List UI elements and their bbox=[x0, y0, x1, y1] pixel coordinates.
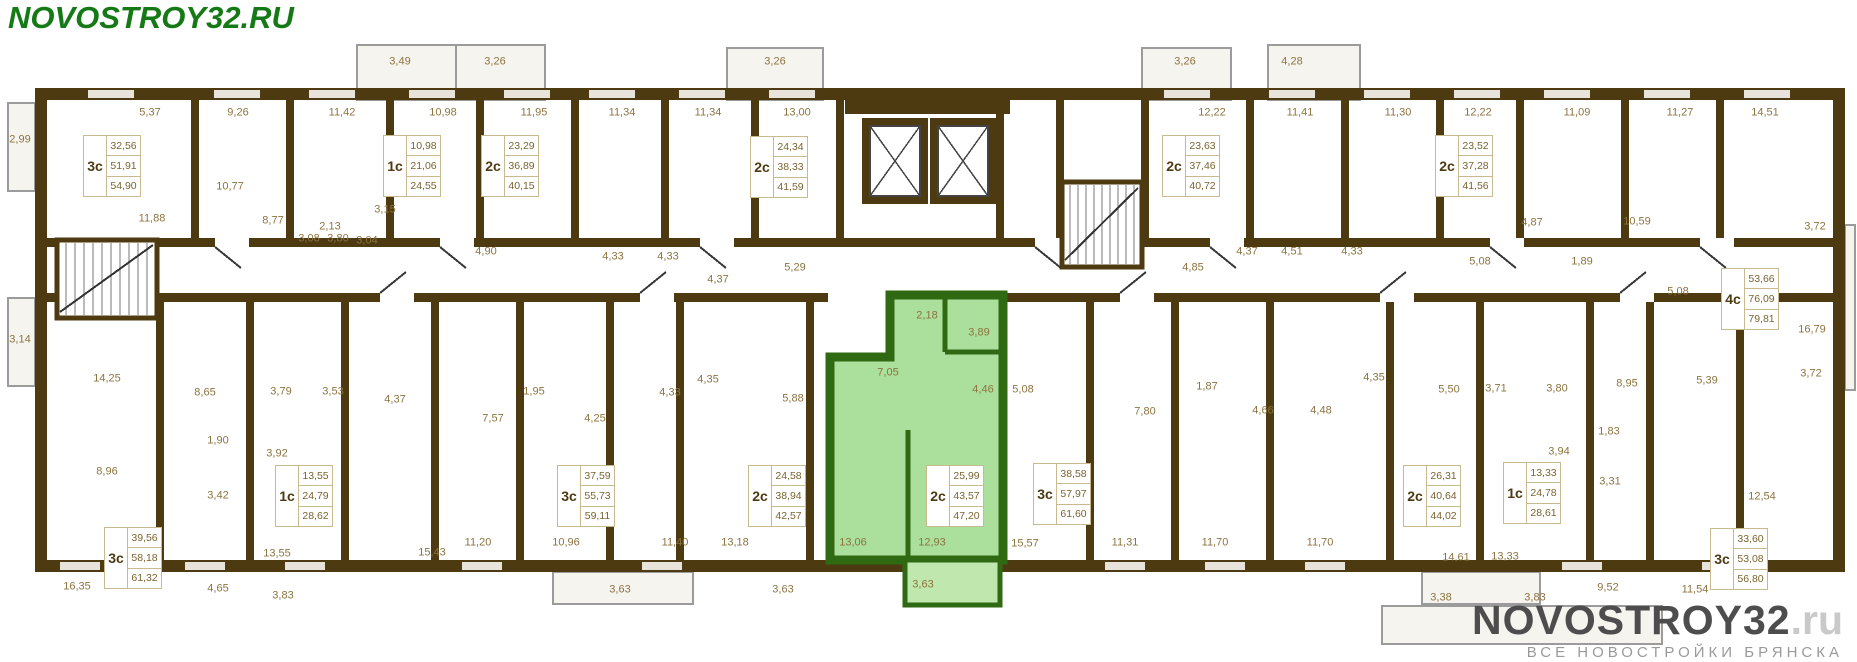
dimension-label: 2,13 bbox=[319, 222, 340, 233]
apartment-card[interactable]: 3с37,5955,7359,11 bbox=[557, 465, 615, 527]
dimension-label: 3,08 bbox=[298, 234, 319, 245]
dimension-label: 11,31 bbox=[1112, 538, 1139, 549]
dimension-label: 14,61 bbox=[1442, 553, 1470, 564]
apartment-area-value: 23,52 bbox=[1459, 136, 1492, 155]
apartment-type: 2с bbox=[751, 137, 773, 197]
dimension-label: 12,54 bbox=[1748, 492, 1776, 503]
dimension-label: 11,42 bbox=[329, 108, 356, 119]
apartment-area-value: 53,08 bbox=[1734, 548, 1767, 568]
dimension-label: 2,99 bbox=[9, 135, 30, 146]
dimension-label: 3,92 bbox=[266, 449, 287, 460]
apartment-type: 2с bbox=[482, 136, 504, 196]
dimension-label: 11,70 bbox=[1202, 538, 1229, 549]
floor-plan-svg bbox=[0, 0, 1857, 662]
apartment-area-value: 59,11 bbox=[581, 506, 614, 526]
apartment-card[interactable]: 2с23,2936,8940,15 bbox=[481, 135, 539, 197]
dimension-label: 13,00 bbox=[783, 108, 811, 119]
apartment-area-value: 24,34 bbox=[774, 137, 807, 156]
apartment-type: 3с bbox=[84, 136, 106, 196]
apartment-card[interactable]: 3с39,5658,1861,32 bbox=[104, 527, 162, 589]
dimension-label: 4,87 bbox=[1521, 218, 1542, 229]
apartment-area-value: 37,46 bbox=[1186, 155, 1219, 175]
apartment-areas: 33,6053,0856,80 bbox=[1733, 529, 1767, 589]
dimension-label: 13,55 bbox=[263, 549, 291, 560]
dimension-label: 5,08 bbox=[1667, 287, 1688, 298]
dimension-label: 13,06 bbox=[839, 538, 867, 549]
apartment-area-value: 13,33 bbox=[1527, 463, 1560, 482]
dimension-label: 1,87 bbox=[1196, 382, 1217, 393]
dimension-label: 3,26 bbox=[764, 57, 785, 68]
dimension-label: 9,26 bbox=[227, 108, 248, 119]
apartment-area-value: 28,61 bbox=[1527, 503, 1560, 523]
watermark-tagline: ВСЕ НОВОСТРОЙКИ БРЯНСКА bbox=[1472, 645, 1843, 660]
apartment-type: 3с bbox=[1034, 464, 1056, 524]
dimension-label: 11,70 bbox=[1307, 538, 1334, 549]
dimension-label: 12,22 bbox=[1464, 108, 1492, 119]
stairwell-left bbox=[57, 240, 157, 318]
dimension-label: 4,33 bbox=[1341, 247, 1362, 258]
dimension-label: 11,20 bbox=[465, 538, 492, 549]
door-leaves bbox=[120, 247, 1726, 293]
apartment-area-value: 24,55 bbox=[407, 176, 440, 196]
dimension-label: 12,22 bbox=[1198, 108, 1226, 119]
dimension-label: 7,57 bbox=[482, 414, 503, 425]
dimension-label: 1,95 bbox=[523, 387, 544, 398]
apartment-type: 1с bbox=[384, 136, 406, 196]
apartment-area-value: 40,15 bbox=[505, 176, 538, 196]
apartment-card[interactable]: 2с24,3438,3341,59 bbox=[750, 136, 808, 198]
dimension-label: 11,54 bbox=[1682, 585, 1709, 596]
apartment-type: 4с bbox=[1722, 269, 1744, 329]
dimension-label: 8,96 bbox=[96, 467, 117, 478]
apartment-areas: 23,6337,4640,72 bbox=[1185, 136, 1219, 196]
dimension-label: 3,26 bbox=[1174, 57, 1195, 68]
apartment-card-highlighted[interactable]: 2с25,9943,5747,20 bbox=[926, 465, 984, 527]
dimension-label: 3,89 bbox=[968, 328, 989, 339]
apartment-areas: 32,5651,9154,90 bbox=[106, 136, 140, 196]
page: NOVOSTROY32.RU bbox=[0, 0, 1857, 662]
apartment-area-value: 37,28 bbox=[1459, 155, 1492, 175]
apartment-area-value: 38,58 bbox=[1057, 464, 1090, 483]
apartment-area-value: 13,55 bbox=[299, 466, 332, 485]
apartment-area-value: 39,56 bbox=[128, 528, 161, 547]
apartment-areas: 38,5857,9761,60 bbox=[1056, 464, 1090, 524]
dimension-label: 5,88 bbox=[782, 394, 803, 405]
dimension-label: 5,39 bbox=[1696, 376, 1717, 387]
apartment-areas: 25,9943,5747,20 bbox=[949, 466, 983, 526]
dimension-label: 11,09 bbox=[1564, 108, 1591, 119]
apartment-type: 1с bbox=[1504, 463, 1526, 523]
apartment-area-value: 24,79 bbox=[299, 485, 332, 505]
apartment-areas: 23,5237,2841,56 bbox=[1458, 136, 1492, 196]
dimension-label: 3,31 bbox=[1599, 477, 1620, 488]
apartment-areas: 24,3438,3341,59 bbox=[773, 137, 807, 197]
apartment-area-value: 26,31 bbox=[1427, 466, 1460, 485]
dimension-label: 4,33 bbox=[659, 388, 680, 399]
apartment-type: 2с bbox=[1404, 466, 1426, 526]
dimension-label: 1,83 bbox=[1598, 427, 1619, 438]
dimension-label: 4,37 bbox=[384, 395, 405, 406]
dimension-label: 3,63 bbox=[912, 580, 933, 591]
dimension-label: 3,14 bbox=[9, 335, 30, 346]
apartment-area-value: 40,72 bbox=[1186, 176, 1219, 196]
apartment-type: 2с bbox=[1436, 136, 1458, 196]
apartment-area-value: 24,78 bbox=[1527, 482, 1560, 502]
dimension-label: 3,79 bbox=[270, 387, 291, 398]
apartment-type: 3с bbox=[105, 528, 127, 588]
dimension-label: 5,08 bbox=[1012, 385, 1033, 396]
apartment-area-value: 38,94 bbox=[772, 485, 805, 505]
apartment-areas: 13,3324,7828,61 bbox=[1526, 463, 1560, 523]
apartment-area-value: 61,60 bbox=[1057, 504, 1090, 524]
dimension-label: 5,37 bbox=[139, 108, 160, 119]
watermark-brand: NOVOSTROY32 bbox=[1472, 597, 1791, 643]
dimension-label: 11,41 bbox=[1287, 108, 1314, 119]
apartment-areas: 23,2936,8940,15 bbox=[504, 136, 538, 196]
dimension-label: 3,71 bbox=[1485, 384, 1506, 395]
apartment-areas: 53,6676,0979,81 bbox=[1744, 269, 1778, 329]
dimension-label: 3,49 bbox=[389, 57, 410, 68]
dimension-label: 2,18 bbox=[916, 311, 937, 322]
dimension-label: 16,79 bbox=[1798, 325, 1826, 336]
apartment-area-value: 24,58 bbox=[772, 466, 805, 485]
dimension-label: 1,89 bbox=[1571, 257, 1592, 268]
apartment-card[interactable]: 2с26,3140,6444,02 bbox=[1403, 465, 1461, 527]
dimension-label: 1,90 bbox=[207, 436, 228, 447]
apartment-area-value: 54,90 bbox=[107, 176, 140, 196]
dimension-label: 11,40 bbox=[662, 538, 689, 549]
dimension-label: 5,50 bbox=[1438, 385, 1459, 396]
dimension-label: 3,26 bbox=[484, 57, 505, 68]
floor-plan: 5,379,2611,4210,9811,9511,3411,3413,0012… bbox=[0, 0, 1857, 662]
dimension-label: 10,77 bbox=[216, 182, 244, 193]
dimension-label: 3,38 bbox=[1430, 593, 1451, 604]
apartment-card[interactable]: 3с38,5857,9761,60 bbox=[1033, 463, 1091, 525]
apartment-type: 1с bbox=[276, 466, 298, 526]
apartment-card[interactable]: 1с13,3324,7828,61 bbox=[1503, 462, 1561, 524]
dimension-label: 15,43 bbox=[418, 548, 446, 559]
dimension-label: 4,35 bbox=[697, 375, 718, 386]
apartment-area-value: 32,56 bbox=[107, 136, 140, 155]
dimension-label: 3,63 bbox=[772, 585, 793, 596]
dimension-label: 14,51 bbox=[1751, 108, 1779, 119]
dimension-label: 4,35 bbox=[1363, 373, 1384, 384]
apartment-area-value: 76,09 bbox=[1745, 288, 1778, 308]
dimension-label: 4,90 bbox=[475, 247, 496, 258]
apartment-area-value: 23,29 bbox=[505, 136, 538, 155]
apartment-type: 2с bbox=[749, 466, 771, 526]
apartment-areas: 24,5838,9442,57 bbox=[771, 466, 805, 526]
dimension-label: 3,80 bbox=[1546, 384, 1567, 395]
apartment-area-value: 43,57 bbox=[950, 485, 983, 505]
dimension-label: 15,57 bbox=[1011, 539, 1039, 550]
dimension-label: 11,27 bbox=[1667, 108, 1694, 119]
dimension-label: 3,72 bbox=[1804, 222, 1825, 233]
dimension-label: 11,34 bbox=[609, 108, 636, 119]
dimension-label: 3,53 bbox=[322, 387, 343, 398]
dimension-label: 3,72 bbox=[1800, 369, 1821, 380]
apartment-area-value: 36,89 bbox=[505, 155, 538, 175]
apartment-areas: 37,5955,7359,11 bbox=[580, 466, 614, 526]
dimension-label: 10,98 bbox=[429, 108, 457, 119]
dimension-label: 4,33 bbox=[602, 252, 623, 263]
stairwell-center bbox=[1062, 182, 1142, 267]
apartment-area-value: 33,60 bbox=[1734, 529, 1767, 548]
apartment-area-value: 21,06 bbox=[407, 155, 440, 175]
dimension-label: 4,85 bbox=[1182, 263, 1203, 274]
apartment-card[interactable]: 2с23,5237,2841,56 bbox=[1435, 135, 1493, 197]
apartment-card[interactable]: 3с33,6053,0856,80 bbox=[1710, 528, 1768, 590]
dimension-label: 4,37 bbox=[1236, 247, 1257, 258]
apartment-areas: 39,5658,1861,32 bbox=[127, 528, 161, 588]
apartment-type: 3с bbox=[1711, 529, 1733, 589]
apartment-area-value: 79,81 bbox=[1745, 309, 1778, 329]
dimension-label: 11,95 bbox=[521, 108, 548, 119]
apartment-area-value: 28,62 bbox=[299, 506, 332, 526]
dimension-label: 14,25 bbox=[93, 374, 121, 385]
dimension-label: 3,94 bbox=[1548, 447, 1569, 458]
apartment-type: 2с bbox=[927, 466, 949, 526]
dimension-label: 7,05 bbox=[877, 368, 898, 379]
apartment-area-value: 37,59 bbox=[581, 466, 614, 485]
dimension-label: 4,46 bbox=[972, 385, 993, 396]
dimension-label: 11,88 bbox=[139, 214, 166, 225]
apartment-area-value: 41,59 bbox=[774, 177, 807, 197]
dimension-label: 3,04 bbox=[356, 236, 377, 247]
dimension-label: 4,51 bbox=[1281, 247, 1302, 258]
apartment-area-value: 44,02 bbox=[1427, 506, 1460, 526]
dimension-label: 3,83 bbox=[272, 591, 293, 602]
apartment-area-value: 41,56 bbox=[1459, 176, 1492, 196]
dimension-label: 8,95 bbox=[1616, 379, 1637, 390]
apartment-area-value: 47,20 bbox=[950, 506, 983, 526]
dimension-label: 13,33 bbox=[1491, 552, 1519, 563]
dimension-label: 8,77 bbox=[262, 216, 283, 227]
apartment-areas: 26,3140,6444,02 bbox=[1426, 466, 1460, 526]
dimension-label: 3,80 bbox=[327, 234, 348, 245]
apartment-card[interactable]: 2с23,6337,4640,72 bbox=[1162, 135, 1220, 197]
apartment-card[interactable]: 2с24,5838,9442,57 bbox=[748, 465, 806, 527]
dimension-label: 5,29 bbox=[784, 263, 805, 274]
apartment-area-value: 56,80 bbox=[1734, 569, 1767, 589]
apartment-area-value: 51,91 bbox=[107, 155, 140, 175]
apartment-area-value: 55,73 bbox=[581, 485, 614, 505]
watermark: NOVOSTROY32.ru ВСЕ НОВОСТРОЙКИ БРЯНСКА bbox=[1472, 600, 1843, 660]
apartment-area-value: 61,32 bbox=[128, 568, 161, 588]
apartment-area-value: 23,63 bbox=[1186, 136, 1219, 155]
dimension-label: 4,48 bbox=[1310, 406, 1331, 417]
apartment-area-value: 58,18 bbox=[128, 547, 161, 567]
apartment-card[interactable]: 4с53,6676,0979,81 bbox=[1721, 268, 1779, 330]
apartment-areas: 10,9821,0624,55 bbox=[406, 136, 440, 196]
apartment-type: 3с bbox=[558, 466, 580, 526]
apartment-area-value: 38,33 bbox=[774, 156, 807, 176]
dimension-label: 4,37 bbox=[707, 275, 728, 286]
dimension-label: 5,08 bbox=[1469, 257, 1490, 268]
highlighted-apartment[interactable] bbox=[830, 295, 1003, 605]
dimension-label: 16,35 bbox=[63, 582, 91, 593]
apartment-card[interactable]: 1с10,9821,0624,55 bbox=[383, 135, 441, 197]
dimension-label: 7,80 bbox=[1134, 407, 1155, 418]
elevator-right bbox=[930, 118, 996, 204]
dimension-label: 11,30 bbox=[1385, 108, 1412, 119]
dimension-label: 10,96 bbox=[552, 538, 580, 549]
dimension-label: 8,65 bbox=[194, 388, 215, 399]
apartment-area-value: 25,99 bbox=[950, 466, 983, 485]
apartment-card[interactable]: 3с32,5651,9154,90 bbox=[83, 135, 141, 197]
dimension-label: 12,93 bbox=[918, 538, 946, 549]
apartment-area-value: 42,57 bbox=[772, 506, 805, 526]
elevator-left bbox=[862, 118, 928, 204]
dimension-label: 4,33 bbox=[657, 252, 678, 263]
dimension-label: 3,15 bbox=[374, 205, 395, 216]
apartment-type: 2с bbox=[1163, 136, 1185, 196]
apartment-area-value: 57,97 bbox=[1057, 483, 1090, 503]
apartment-area-value: 10,98 bbox=[407, 136, 440, 155]
dimension-label: 4,28 bbox=[1281, 57, 1302, 68]
dimension-label: 3,63 bbox=[609, 585, 630, 596]
dimension-label: 10,59 bbox=[1623, 217, 1651, 228]
dimension-label: 11,34 bbox=[695, 108, 722, 119]
dimension-label: 4,65 bbox=[207, 584, 228, 595]
dimension-label: 4,66 bbox=[1252, 406, 1273, 417]
apartment-area-value: 53,66 bbox=[1745, 269, 1778, 288]
apartment-areas: 13,5524,7928,62 bbox=[298, 466, 332, 526]
watermark-tld: .ru bbox=[1791, 597, 1843, 643]
dimension-label: 3,42 bbox=[207, 491, 228, 502]
apartment-card[interactable]: 1с13,5524,7928,62 bbox=[275, 465, 333, 527]
dimension-label: 13,18 bbox=[721, 538, 749, 549]
apartment-area-value: 40,64 bbox=[1427, 485, 1460, 505]
dimension-label: 9,52 bbox=[1597, 583, 1618, 594]
dimension-label: 4,25 bbox=[584, 414, 605, 425]
